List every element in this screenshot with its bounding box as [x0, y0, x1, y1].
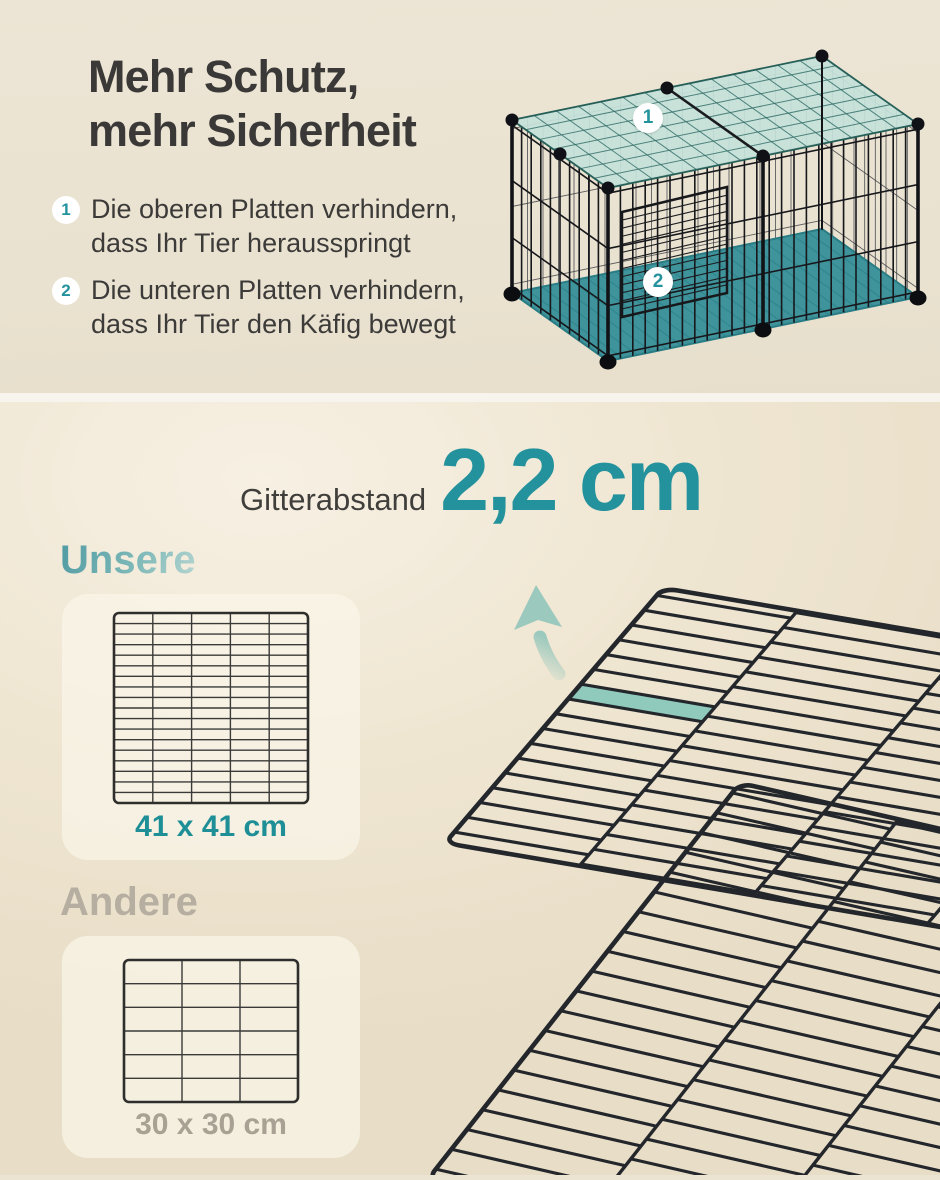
cage-marker-2-badge: 2	[643, 267, 673, 297]
feature-2-text: Die unteren Platten verhindern,dass Ihr …	[91, 273, 465, 341]
up-arrow-icon-tail	[540, 637, 559, 674]
others-size-label: 30 x 30 cm	[62, 1108, 360, 1142]
up-arrow-icon	[514, 585, 562, 630]
feature-list: 1 Die oberen Platten verhindern,dass Ihr…	[52, 192, 465, 354]
grid-spacing-callout: Gitterabstand 2,2 cm	[240, 436, 702, 524]
cage-svg	[492, 18, 940, 390]
panels-illustration	[400, 555, 940, 1175]
grid-spacing-value: 2,2 cm	[440, 436, 702, 524]
feature-1-number-badge: 1	[52, 196, 80, 224]
feature-item-top-panels: 1 Die oberen Platten verhindern,dass Ihr…	[52, 192, 465, 260]
ours-heading: Unsere	[60, 538, 196, 583]
cage-marker-1-badge: 1	[633, 103, 663, 133]
ours-size-label: 41 x 41 cm	[62, 810, 360, 844]
feature-2-number-badge: 2	[52, 277, 80, 305]
feature-1-line2: dass Ihr Tier herausspringt	[91, 228, 411, 258]
page-title: Mehr Schutz,mehr Sicherheit	[88, 50, 416, 158]
cage-illustration: 1 2	[492, 18, 940, 390]
others-heading: Andere	[60, 880, 198, 925]
hero-section: Mehr Schutz,mehr Sicherheit 1 Die oberen…	[0, 0, 940, 394]
feature-item-bottom-panels: 2 Die unteren Platten verhindern,dass Ih…	[52, 273, 465, 341]
page-title-line1: Mehr Schutz,	[88, 51, 358, 102]
feature-1-text: Die oberen Platten verhindern,dass Ihr T…	[91, 192, 457, 260]
feature-2-line2: dass Ihr Tier den Käfig bewegt	[91, 309, 456, 339]
feature-2-line1: Die unteren Platten verhindern,	[91, 275, 465, 305]
section-divider	[0, 393, 940, 402]
grid-spacing-label: Gitterabstand	[240, 482, 426, 518]
others-card: 30 x 30 cm	[62, 936, 360, 1158]
panels-svg	[400, 555, 940, 1175]
feature-1-line1: Die oberen Platten verhindern,	[91, 194, 457, 224]
page-title-line2: mehr Sicherheit	[88, 105, 416, 156]
others-grid-figure	[122, 958, 300, 1104]
ours-card: 41 x 41 cm	[62, 594, 360, 860]
ours-grid-figure	[112, 611, 310, 805]
product-infographic: { "colors": { "accent_teal": "#24929c", …	[0, 0, 940, 1175]
